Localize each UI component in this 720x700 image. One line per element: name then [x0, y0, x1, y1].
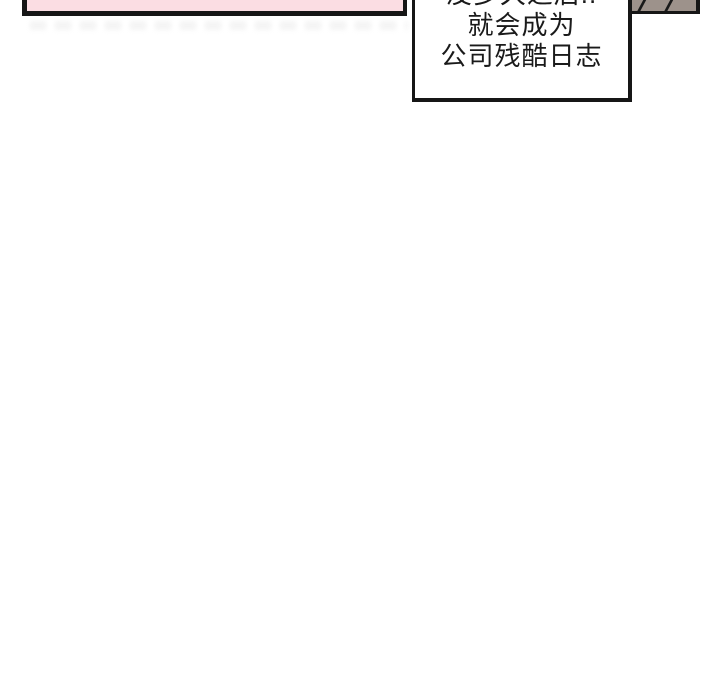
comic-page: 没多久之后.. 就会成为 公司残酷日志 — [0, 0, 720, 700]
corner-stripe-icon — [634, 0, 649, 14]
speech-line-1-clipped: 没多久之后.. — [415, 0, 628, 10]
speech-line-2: 就会成为 — [415, 10, 628, 41]
top-panel-edge — [22, 0, 407, 16]
speech-caption-box: 没多久之后.. 就会成为 公司残酷日志 — [412, 0, 632, 102]
corner-stripe-icon — [661, 0, 676, 14]
panel-shadow-ghost — [30, 21, 408, 30]
speech-text: 没多久之后.. 就会成为 公司残酷日志 — [415, 0, 628, 72]
striped-corner-object — [631, 0, 700, 14]
speech-line-3: 公司残酷日志 — [415, 41, 628, 72]
